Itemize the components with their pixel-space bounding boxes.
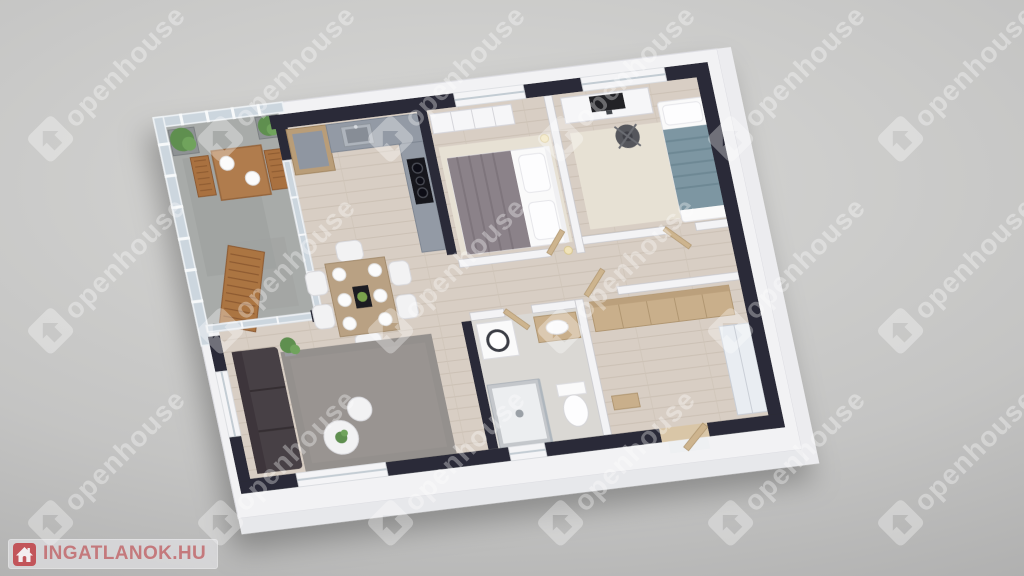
brand-logo-text: INGATLANOK.HU [43, 543, 206, 565]
double-bed [447, 146, 570, 255]
planter-box [168, 126, 199, 156]
washing-machine [476, 320, 519, 360]
outdoor-table [211, 145, 271, 200]
brand-logo: INGATLANOK.HU [8, 539, 218, 569]
brand-house-icon [13, 543, 36, 566]
apartment-building [152, 46, 819, 534]
floor-plan-render [0, 0, 1024, 576]
real-estate-listing-image: { "css_vars": { "--bg-center": "#d8d8d6"… [0, 0, 1024, 576]
bench [612, 393, 641, 410]
vanity-sink [534, 312, 581, 343]
kitchen-sink [340, 123, 374, 147]
